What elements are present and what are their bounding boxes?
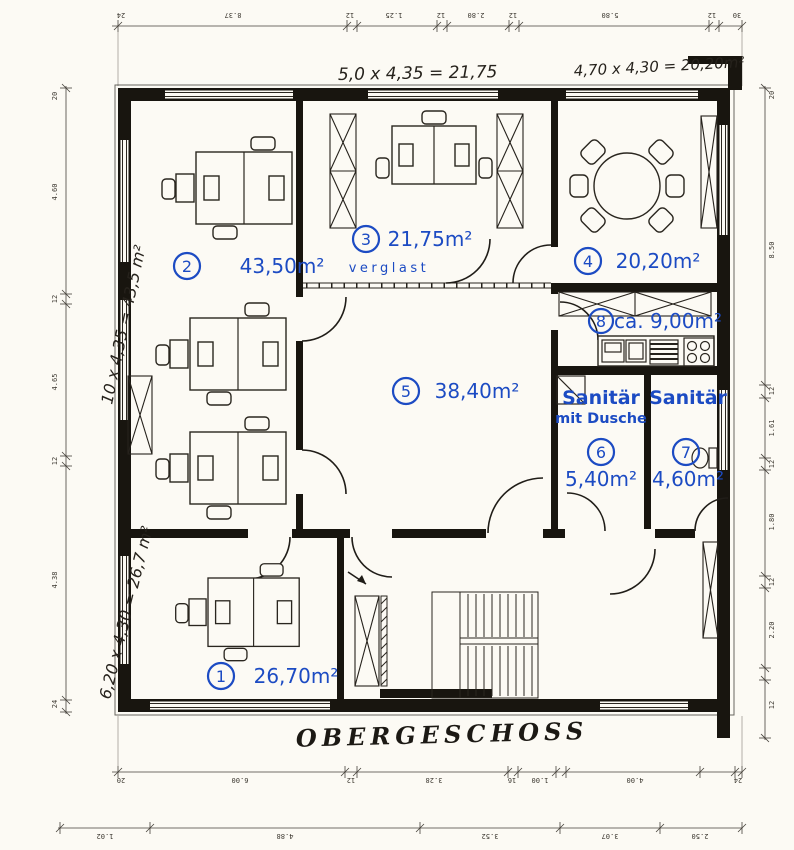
room-6-area: 5,40m² — [565, 467, 637, 491]
room-5-number: 5 — [401, 382, 411, 401]
dim-right-5: 1.80 — [768, 514, 776, 531]
shaft-panel — [355, 596, 387, 686]
dim-top-0: 24 — [117, 11, 125, 19]
workstation-room2-top — [162, 137, 292, 239]
dim-left-0: 20 — [51, 92, 59, 100]
dim-right-8: 12 — [768, 701, 776, 709]
workstation-room2-low — [156, 417, 286, 519]
room-5-area: 38,40m² — [435, 379, 520, 403]
dim-top-1: 8.37 — [225, 11, 242, 19]
room-4-label: 4 20,20m² — [575, 248, 700, 274]
room-7-label: Sanitär 7 4,60m² — [649, 387, 727, 491]
dim-top-8: 12 — [708, 11, 716, 19]
room-1-area: 26,70m² — [254, 664, 339, 688]
dim-left-6: 24 — [51, 700, 59, 708]
stair-treads-upper — [468, 594, 532, 637]
dim-top-4: 12 — [437, 11, 445, 19]
dim-b1-1: 6.00 — [232, 776, 249, 784]
handwritten-top-right: 4,70 x 4,30 = 20,20m² — [573, 53, 745, 80]
dim-b1-2: 12 — [347, 776, 355, 784]
meeting-table — [570, 138, 684, 234]
dim-b2-3: 3.07 — [602, 832, 619, 840]
dim-top-6: 12 — [509, 11, 517, 19]
room-2-area: 43,50m² — [240, 254, 325, 278]
room-8-label: 8 ca. 9,00m² — [589, 309, 722, 333]
workstation-room3 — [376, 111, 492, 184]
dim-left-5: 4.38 — [51, 572, 59, 589]
dim-b1-4: 16 — [508, 776, 516, 784]
dim-top-7: 5.80 — [602, 11, 619, 19]
dim-left-3: 4.65 — [51, 374, 59, 391]
room-4-number: 4 — [583, 252, 593, 271]
dim-b2-2: 3.52 — [482, 832, 499, 840]
workstation-room1 — [176, 564, 300, 661]
dim-top-5: 2.80 — [468, 11, 485, 19]
dim-b2-1: 4.88 — [277, 832, 294, 840]
dimension-chain-bottom-2: 1.02 4.88 3.52 3.07 2.50 — [56, 822, 746, 840]
dim-b1-3: 3.28 — [426, 776, 443, 784]
dimension-chain-right: 20 8.50 12 1.61 12 1.80 12 2.20 12 — [759, 84, 776, 742]
toilet — [692, 448, 717, 468]
dim-left-1: 4.60 — [51, 184, 59, 201]
room-3-label: 3 21,75m² verglast — [349, 226, 473, 276]
room-2-number: 2 — [182, 257, 192, 276]
floor-plan-scan: 24 8.37 12 1.25 12 2.80 12 5.80 12 30 20… — [0, 0, 794, 850]
room-1-label: 1 26,70m² — [208, 663, 338, 689]
room-6-name: Sanitär — [562, 387, 640, 409]
room-6-label: Sanitär mit Dusche 6 5,40m² — [555, 387, 647, 491]
room-6-number: 6 — [596, 443, 606, 462]
dim-top-9: 30 — [733, 11, 741, 19]
dim-b1-6: 4.00 — [627, 776, 644, 784]
dim-right-4: 12 — [768, 460, 776, 468]
room-7-area: 4,60m² — [652, 467, 724, 491]
dim-b1-0: 20 — [117, 776, 125, 784]
room-5-label: 5 38,40m² — [393, 378, 519, 404]
room-1-number: 1 — [216, 667, 226, 686]
dim-b1-7: 24 — [734, 776, 742, 784]
dimension-chain-left: 20 4.60 12 4.65 12 4.38 24 — [51, 84, 72, 716]
handwritten-top-left: 5,0 x 4,35 = 21,75 — [338, 62, 498, 85]
furniture — [156, 111, 684, 661]
stairs — [348, 572, 538, 698]
stair-treads-lower — [468, 646, 532, 696]
glazed-partition — [303, 283, 551, 288]
dim-b2-0: 1.02 — [97, 832, 114, 840]
dim-right-7: 2.20 — [768, 622, 776, 639]
dim-top-2: 12 — [346, 11, 354, 19]
glazing-label: verglast — [349, 261, 430, 276]
room-8-number: 8 — [596, 312, 606, 331]
dim-right-6: 12 — [768, 578, 776, 586]
room-6-name2: mit Dusche — [555, 411, 647, 427]
room-8-area: ca. 9,00m² — [614, 309, 722, 333]
stair-direction-arrow — [348, 572, 366, 584]
room-7-name: Sanitär — [649, 387, 727, 409]
workstation-room2-mid — [156, 303, 286, 405]
plan-title: OBERGESCHOSS — [296, 716, 589, 753]
dim-b1-5: 1.00 — [532, 776, 549, 784]
floorplan-svg: 24 8.37 12 1.25 12 2.80 12 5.80 12 30 20… — [0, 0, 794, 850]
room-3-area: 21,75m² — [388, 227, 473, 251]
dim-left-4: 12 — [51, 457, 59, 465]
room-7-number: 7 — [681, 443, 691, 462]
dim-right-2: 12 — [768, 387, 776, 395]
dim-left-2: 12 — [51, 295, 59, 303]
dim-right-1: 8.50 — [768, 242, 776, 259]
dim-b2-4: 2.50 — [692, 832, 709, 840]
dim-top-3: 1.25 — [386, 11, 403, 19]
room-4-area: 20,20m² — [616, 249, 701, 273]
room-3-number: 3 — [361, 230, 371, 249]
dim-right-3: 1.61 — [768, 420, 776, 437]
dim-right-0: 20 — [768, 91, 776, 99]
room-2-label: 2 43,50m² — [174, 253, 324, 279]
